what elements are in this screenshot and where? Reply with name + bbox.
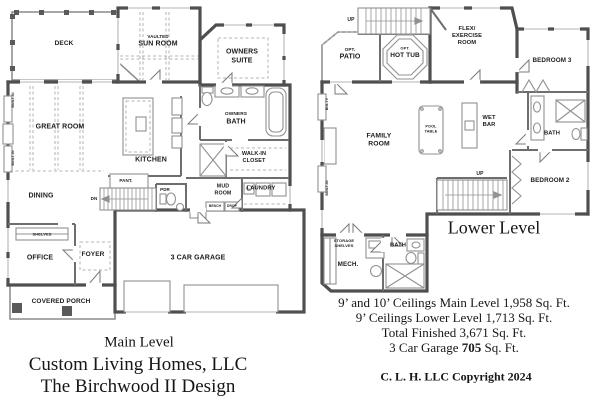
label-great-room: GREAT ROOM: [36, 124, 85, 133]
label-bath-upper: BATH: [544, 130, 560, 137]
label-shelves: SHELVES: [32, 232, 51, 237]
label-opt-hot-tub-pre: OPT.: [400, 46, 409, 51]
label-walk-in-closet: WALK-IN CLOSET: [242, 151, 266, 165]
label-flex-room: FLEX/ EXERCISE ROOM: [452, 26, 482, 48]
label-wet-bar: WET BAR: [482, 115, 495, 129]
label-pantry: PANT.: [119, 178, 132, 184]
label-mud-room: MUD ROOM: [215, 183, 232, 196]
design-name: The Birchwood II Design: [41, 376, 236, 398]
lower-level-title: Lower Level: [448, 218, 540, 239]
label-big-tv: BIG-TV: [325, 98, 329, 110]
lower-level-plan: [318, 8, 588, 291]
stat-garage-sqft: 3 Car Garage 705 Sq. Ft.: [389, 340, 519, 356]
label-built-in-b: BUILT-IN: [11, 150, 15, 165]
lower-dashes: [322, 32, 358, 45]
label-built-in-lower: BUILT-IN: [325, 180, 329, 195]
label-bath-lower: BATH: [390, 242, 406, 249]
stat-main-level-sqft: 9’ and 10’ Ceilings Main Level 1,958 Sq.…: [338, 295, 570, 311]
bedroom3-closet-doors: [522, 80, 550, 92]
garage-door-single: [124, 281, 170, 312]
range: [172, 118, 182, 133]
copyright-line: C. L. H. LLC Copyright 2024: [380, 370, 531, 385]
label-hot-tub: HOT TUB: [390, 52, 420, 60]
company-name: Custom Living Homes, LLC: [29, 354, 248, 376]
label-pool-table: POOL TABLE: [425, 124, 438, 133]
label-pdr: PDR: [160, 187, 170, 193]
label-sun-room: SUN ROOM: [138, 41, 177, 50]
garage-stat-suffix: Sq. Ft.: [481, 340, 519, 355]
label-vaulted: VAULTED: [147, 34, 168, 40]
fireplace: [3, 124, 13, 144]
label-built-in-a: BUILT-IN: [11, 92, 15, 107]
label-patio: PATIO: [340, 54, 361, 63]
label-bedroom-2: BEDROOM 2: [530, 177, 569, 185]
label-dn: DN: [91, 196, 98, 202]
garage-door-double: [184, 285, 278, 312]
label-drop: DROP: [227, 204, 237, 208]
main-level-title: Main Level: [104, 335, 174, 352]
label-storage-shelves: STORAGE SHELVES: [334, 238, 354, 248]
stat-total-finished-sqft: Total Finished 3,671 Sq. Ft.: [382, 325, 527, 341]
label-opt-patio-pre: OPT.: [345, 47, 355, 53]
label-owners-bath: BATH: [226, 119, 245, 128]
label-laundry: LAUNDRY: [247, 185, 276, 192]
water-heater: [371, 266, 382, 277]
label-owners-suite: OWNERS SUITE: [226, 48, 258, 66]
kitchen-sink: [136, 117, 146, 131]
label-up-top: UP: [347, 17, 354, 23]
tv-built-in: [324, 128, 336, 164]
label-covered-porch: COVERED PORCH: [32, 298, 91, 306]
label-bench: BENCH: [209, 204, 221, 208]
fridge: [172, 98, 182, 115]
garage-stat-prefix: 3 Car Garage: [389, 340, 462, 355]
floorplan-canvas: DECK VAULTED SUN ROOM OWNERS SUITE BUILT…: [0, 0, 600, 403]
garage-stat-value: 705: [462, 340, 482, 355]
stat-lower-level-sqft: 9’ Ceilings Lower Level 1,713 Sq. Ft.: [356, 310, 553, 326]
label-kitchen: KITCHEN: [135, 157, 167, 166]
label-foyer: FOYER: [82, 251, 105, 259]
label-owners: OWNERS: [225, 112, 247, 118]
label-family-room: FAMILY ROOM: [367, 133, 392, 150]
label-garage: 3 CAR GARAGE: [171, 255, 226, 264]
label-bedroom-3: BEDROOM 3: [532, 57, 571, 65]
label-up-lower: UP: [476, 171, 483, 177]
label-dining: DINING: [28, 193, 53, 202]
label-deck: DECK: [55, 40, 74, 48]
label-mech: MECH.: [338, 261, 359, 269]
bedroom2-closet-doors: [512, 156, 521, 204]
toilet: [202, 93, 212, 106]
label-office: OFFICE: [27, 255, 53, 264]
